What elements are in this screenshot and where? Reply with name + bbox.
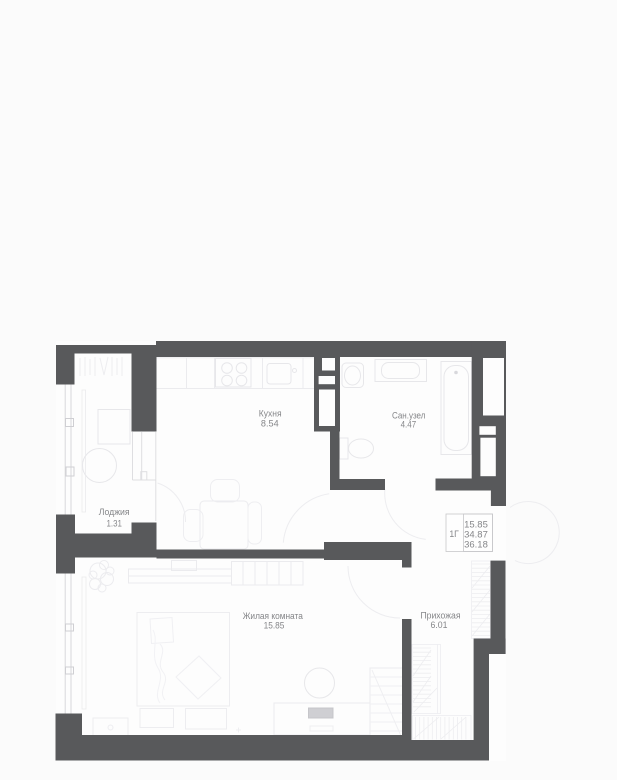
svg-text:34.87: 34.87 xyxy=(464,529,488,539)
svg-text:4.47: 4.47 xyxy=(401,420,417,430)
svg-text:8.54: 8.54 xyxy=(261,419,279,429)
svg-text:Прихожая: Прихожая xyxy=(420,610,460,620)
svg-text:36.18: 36.18 xyxy=(464,540,488,550)
svg-text:Лоджия: Лоджия xyxy=(99,507,130,517)
svg-text:6.01: 6.01 xyxy=(431,620,448,630)
svg-text:1.31: 1.31 xyxy=(107,518,122,528)
svg-text:1Г: 1Г xyxy=(449,529,459,539)
svg-text:15.85: 15.85 xyxy=(464,519,488,529)
svg-text:15.85: 15.85 xyxy=(264,620,285,630)
svg-text:Кухня: Кухня xyxy=(259,408,282,418)
